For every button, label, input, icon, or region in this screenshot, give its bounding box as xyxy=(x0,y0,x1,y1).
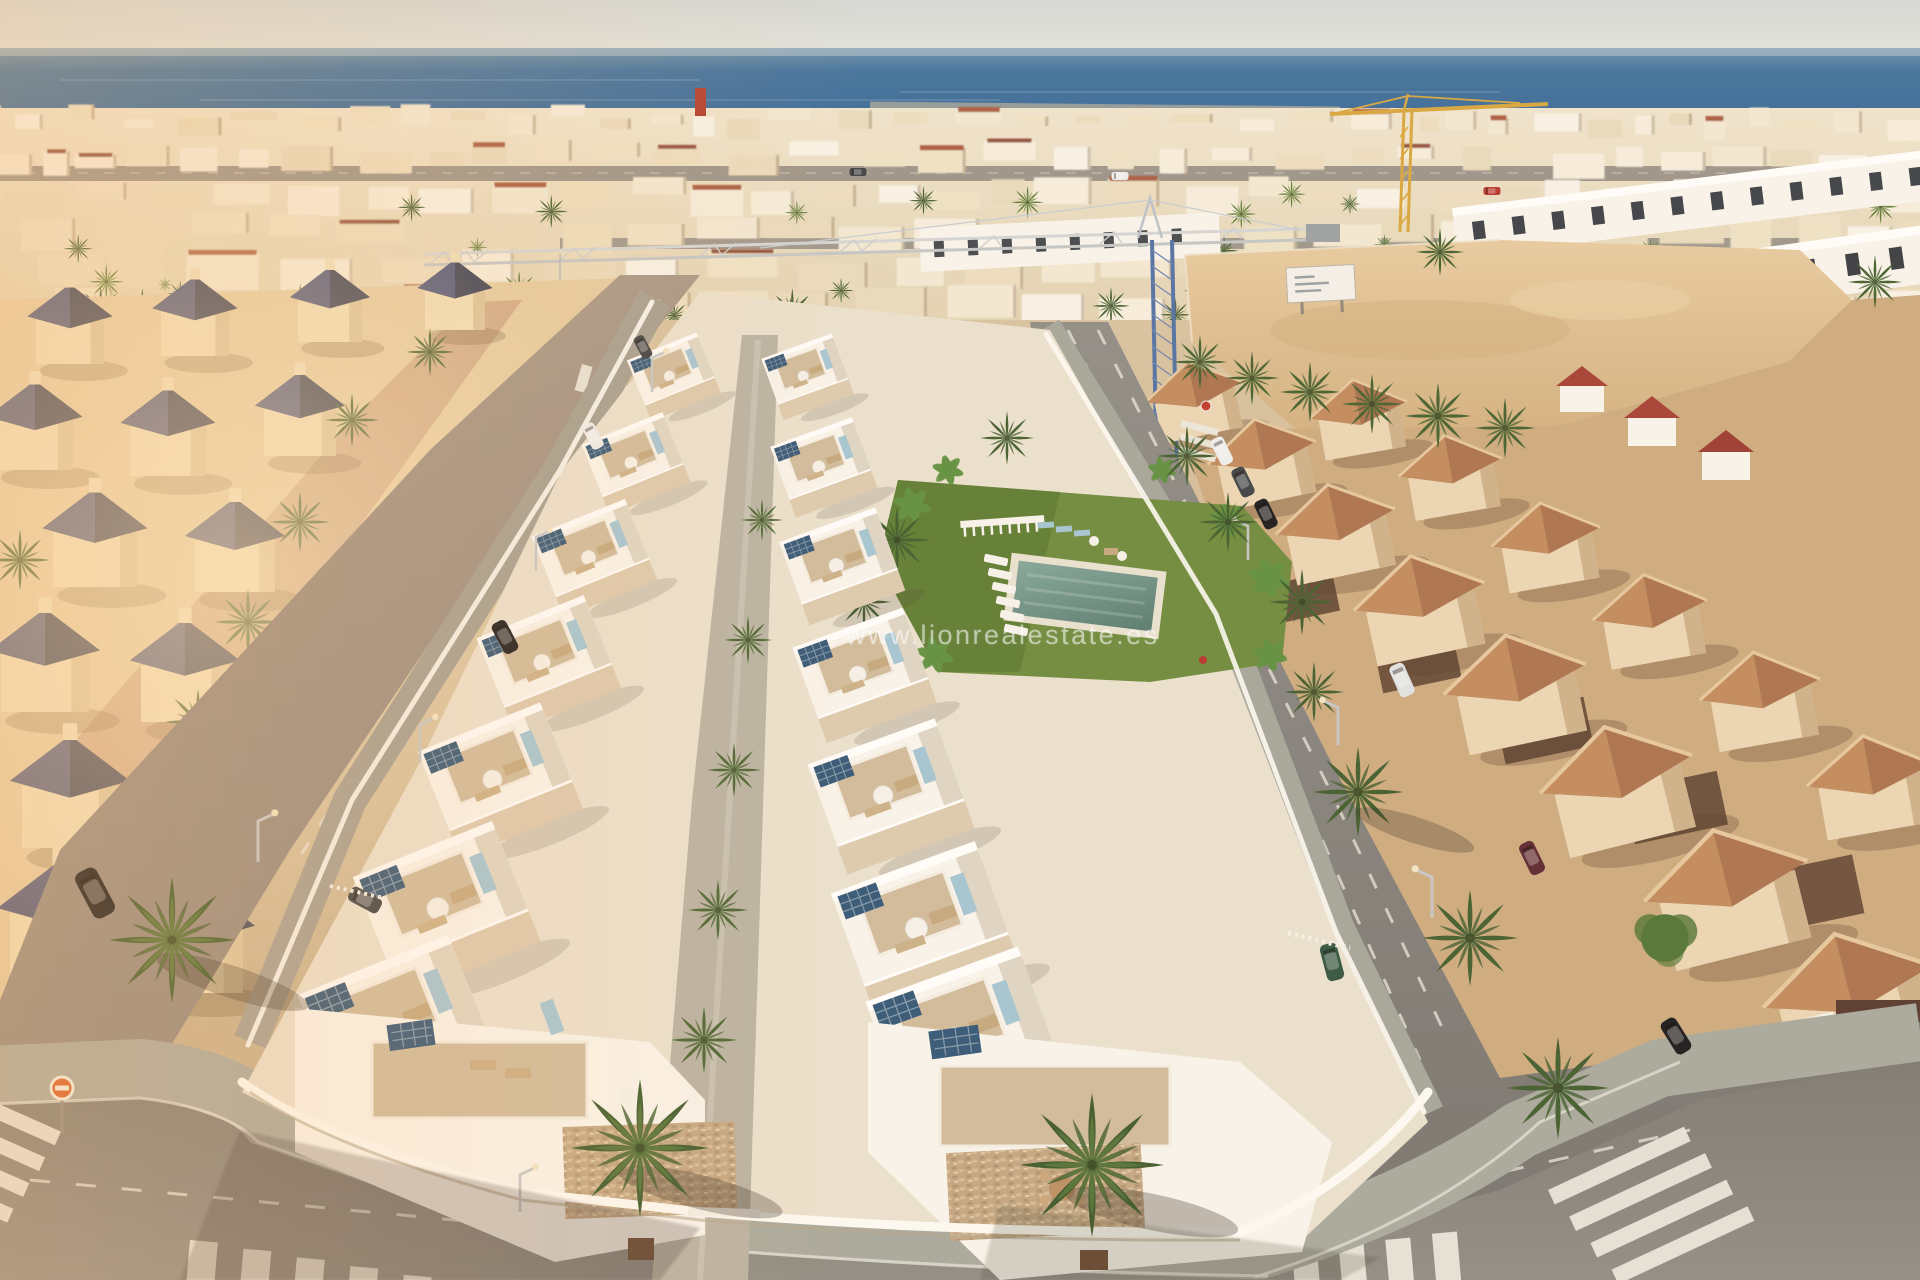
watermark: www.lionrealestate.es xyxy=(846,620,1160,651)
property-aerial-render: www.lionrealestate.es xyxy=(0,0,1920,1280)
